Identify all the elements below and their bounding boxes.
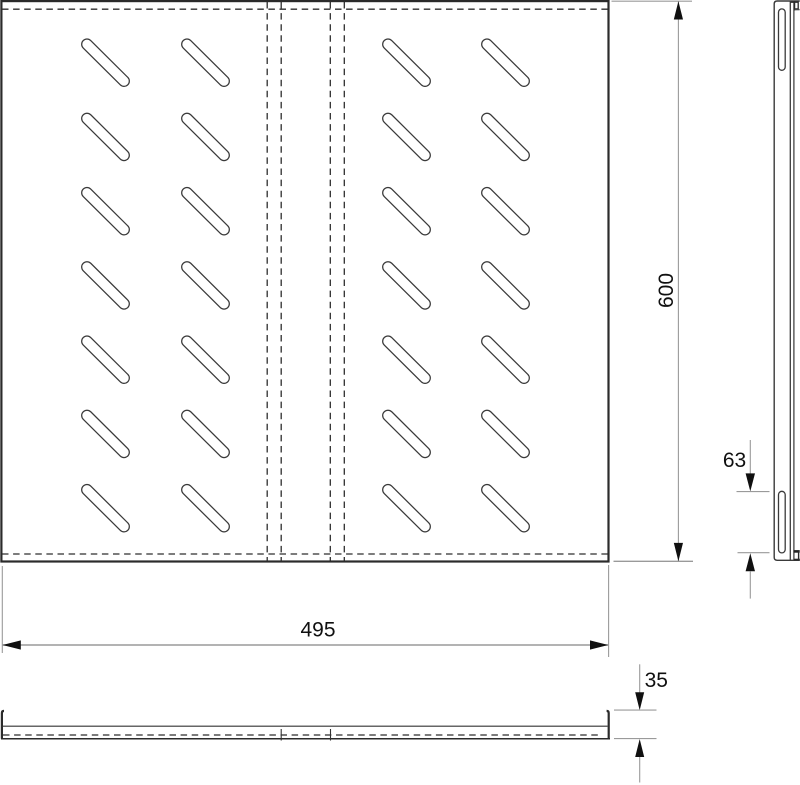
- svg-text:495: 495: [300, 619, 335, 642]
- svg-text:600: 600: [655, 273, 678, 308]
- svg-text:63: 63: [723, 449, 746, 472]
- svg-text:35: 35: [645, 669, 668, 692]
